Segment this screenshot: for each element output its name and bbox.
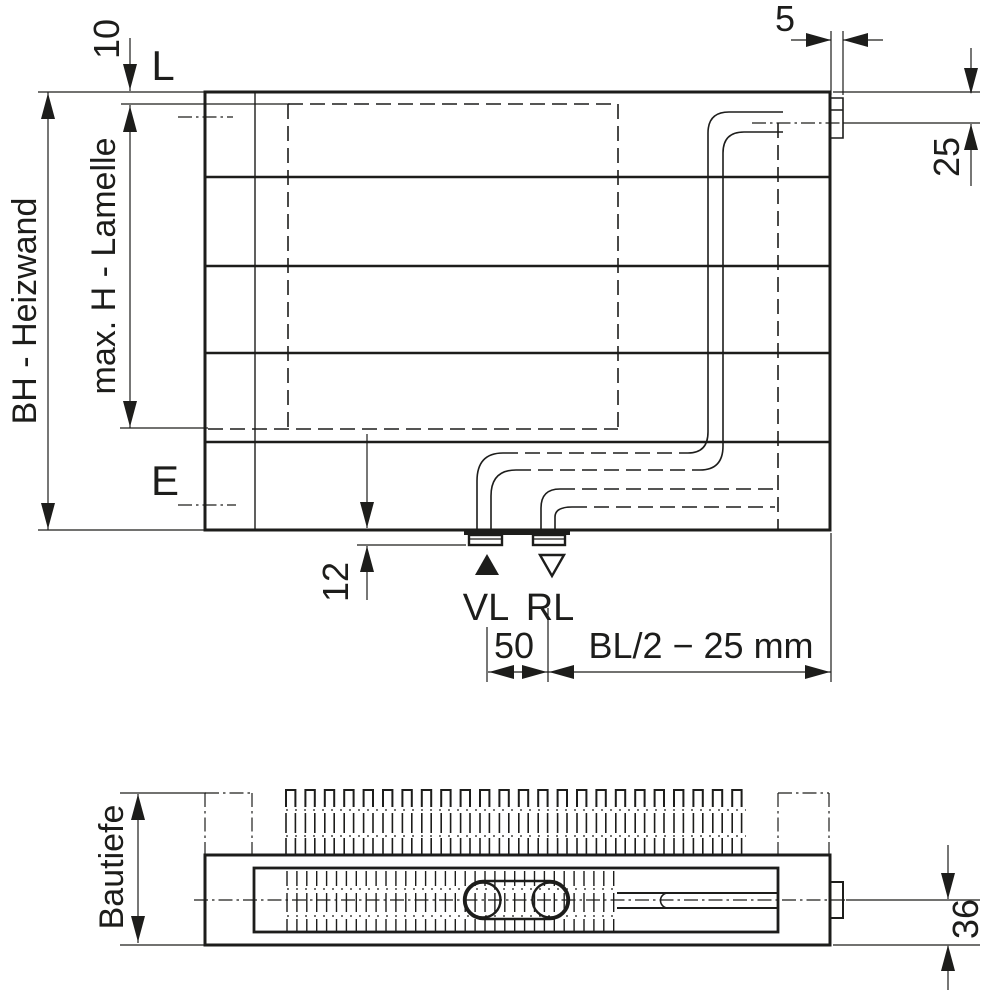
- radiator-outline: [205, 92, 830, 530]
- phantom-end-brackets: [205, 793, 829, 855]
- arrow-50-left-icon: [489, 665, 514, 679]
- arrow-12-bottom-icon: [360, 546, 374, 572]
- vent-nipple: [831, 98, 843, 138]
- dim-25: 25: [926, 137, 967, 177]
- fins-phantom-dots: [286, 810, 746, 836]
- arrow-bl-left-icon: [549, 665, 574, 679]
- supply-stub: [469, 535, 502, 545]
- dim-50: 50: [494, 625, 534, 666]
- arrow-bautiefe-bottom-icon: [131, 916, 145, 942]
- convector-fins-lines: [286, 813, 742, 854]
- arrow-maxh-bottom-icon: [123, 401, 137, 427]
- arrow-5-left-icon: [806, 33, 831, 47]
- label-max-h-lamelle: max. H - Lamelle: [85, 138, 123, 395]
- dim-12: 12: [315, 562, 356, 602]
- label-e: E: [151, 457, 179, 504]
- return-stub: [533, 535, 565, 545]
- front-view: BH - Heizwand max. H - Lamelle 10 L E 5 …: [6, 0, 980, 682]
- dim-36: 36: [945, 899, 986, 939]
- return-flow-arrow-icon: [540, 555, 564, 576]
- supply-flow-arrow-icon: [475, 554, 499, 575]
- arrow-bh-bottom-icon: [41, 503, 55, 529]
- heizwand-dimension-drawing: BH - Heizwand max. H - Lamelle 10 L E 5 …: [0, 0, 1000, 1000]
- pipe-runs-hidden: [503, 453, 775, 507]
- front-dimension-lines: [38, 31, 980, 682]
- arrow-25-top-icon: [964, 68, 978, 94]
- label-bh-heizwand: BH - Heizwand: [6, 198, 44, 425]
- label-vl: VL: [463, 587, 509, 629]
- top-dimension-lines: [120, 793, 980, 990]
- arrow-10-icon: [123, 64, 137, 90]
- arrow-12-top-icon: [360, 502, 374, 528]
- dim-bl2-minus-25: BL/2 − 25 mm: [588, 625, 813, 666]
- convector-fins-lines: [286, 790, 742, 807]
- dim-10: 10: [86, 19, 127, 59]
- arrow-36-bottom-icon: [941, 945, 955, 971]
- arrow-5-right-icon: [843, 33, 868, 47]
- label-l: L: [151, 42, 174, 89]
- label-rl: RL: [526, 587, 575, 629]
- arrow-bh-top-icon: [41, 93, 55, 119]
- lamella-joint-lines: [205, 177, 830, 442]
- front-centerlines: [178, 117, 846, 505]
- arrow-maxh-top-icon: [123, 106, 137, 132]
- arrow-50-right-icon: [522, 665, 547, 679]
- arrow-36-top-icon: [941, 873, 955, 899]
- top-view: Bautiefe 36: [93, 790, 986, 990]
- panel-fin-hatch: [287, 871, 614, 931]
- panel-fin-hatch-lines: [287, 871, 614, 931]
- technical-drawing-page: BH - Heizwand max. H - Lamelle 10 L E 5 …: [0, 0, 1000, 1000]
- arrow-bautiefe-top-icon: [131, 794, 145, 820]
- label-bautiefe: Bautiefe: [93, 805, 131, 930]
- dim-5: 5: [775, 0, 795, 39]
- arrow-bl-right-icon: [805, 665, 830, 679]
- convector-fins: [286, 790, 742, 854]
- max-lamella-hidden-outline: [208, 104, 778, 530]
